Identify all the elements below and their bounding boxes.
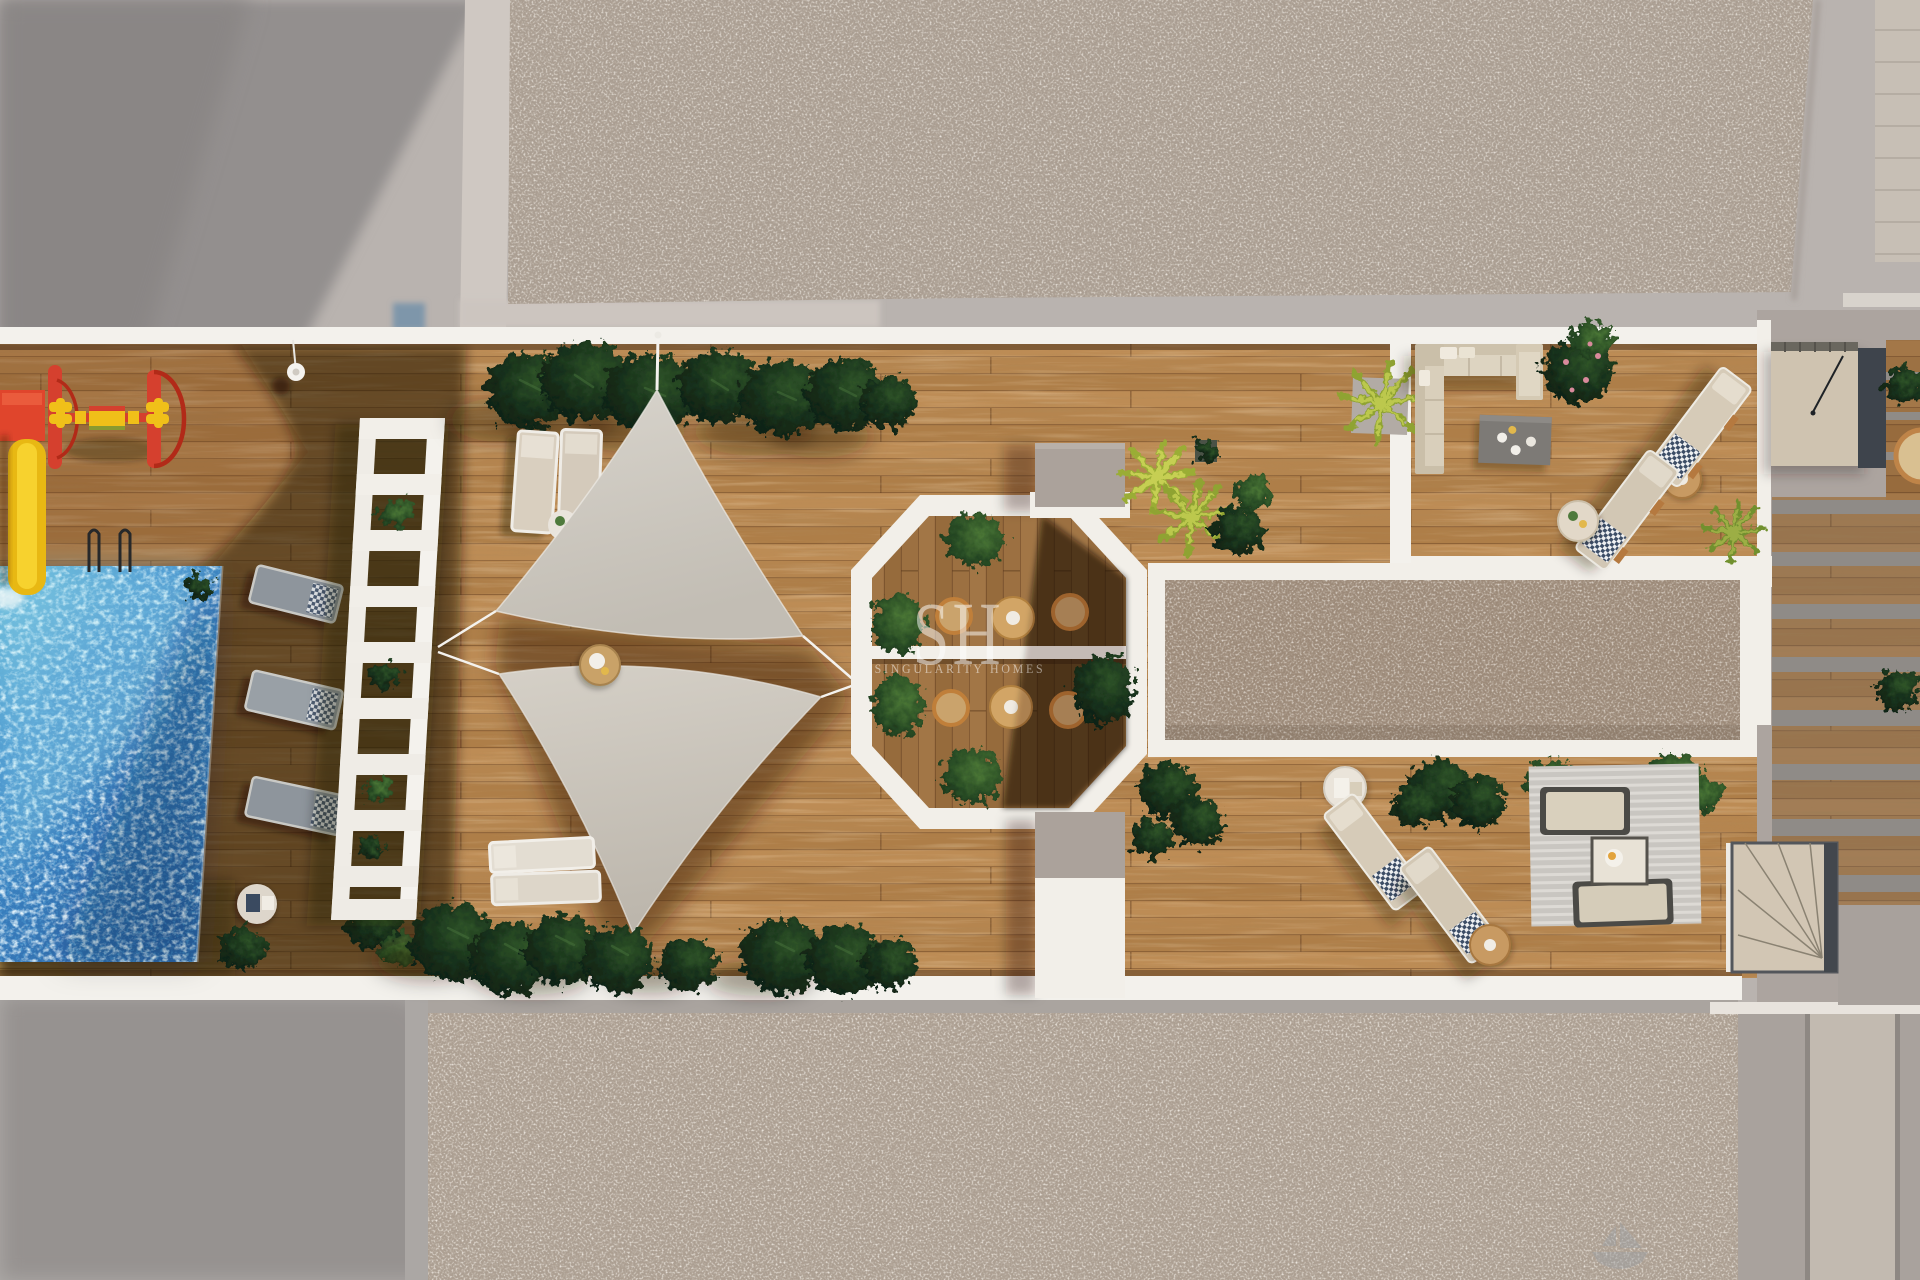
svg-text:SINGULARITY HOMES: SINGULARITY HOMES [875, 662, 1046, 676]
